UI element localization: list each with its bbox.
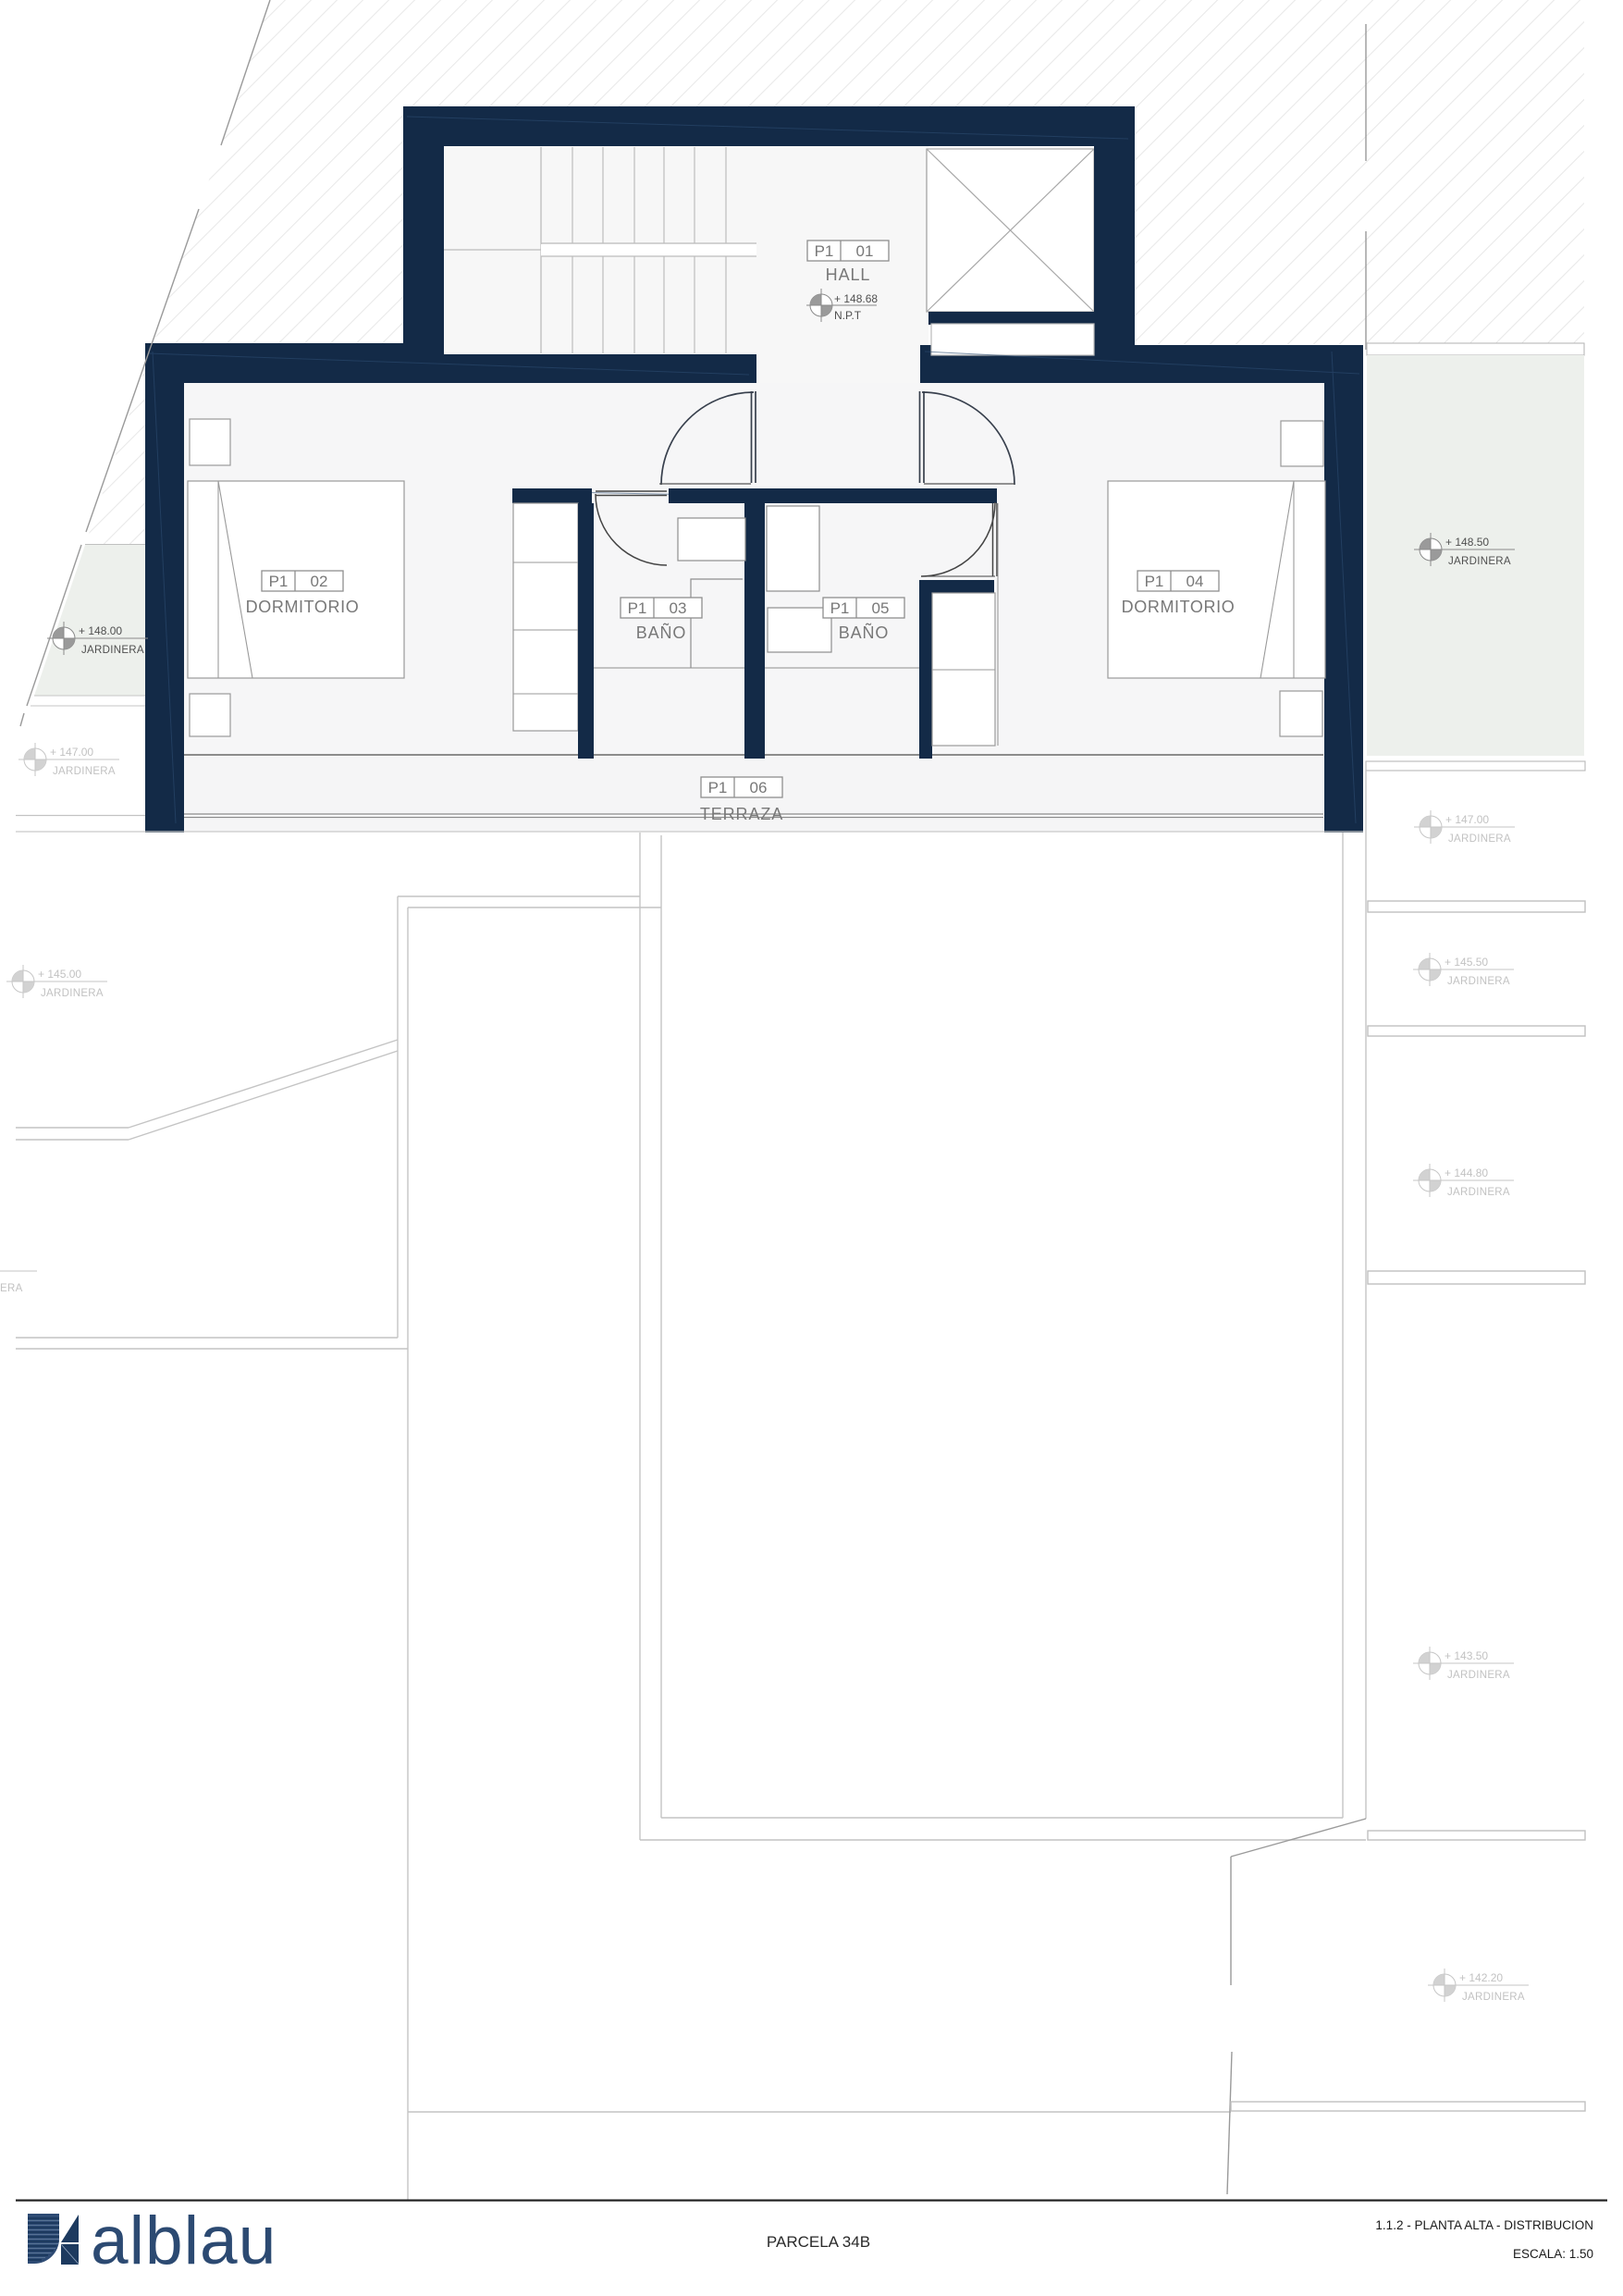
svg-text:BAÑO: BAÑO bbox=[839, 623, 890, 642]
svg-text:JARDINERA: JARDINERA bbox=[1447, 1187, 1510, 1198]
svg-text:+ 148.00: + 148.00 bbox=[79, 624, 122, 637]
svg-text:P1: P1 bbox=[628, 599, 647, 617]
svg-text:HALL: HALL bbox=[826, 265, 871, 284]
svg-text:P1: P1 bbox=[269, 573, 289, 590]
svg-text:alblau: alblau bbox=[91, 2203, 277, 2278]
svg-text:JARDINERA: JARDINERA bbox=[81, 645, 144, 656]
svg-text:01: 01 bbox=[856, 242, 874, 260]
svg-text:+ 147.00: + 147.00 bbox=[50, 746, 93, 759]
svg-text:JARDINERA: JARDINERA bbox=[1462, 1992, 1525, 2003]
svg-text:ERA: ERA bbox=[0, 1283, 23, 1294]
svg-text:+ 145.50: + 145.50 bbox=[1445, 956, 1488, 969]
svg-text:02: 02 bbox=[311, 573, 328, 590]
svg-text:JARDINERA: JARDINERA bbox=[41, 988, 104, 999]
svg-text:+ 148.68: + 148.68 bbox=[834, 292, 878, 305]
svg-text:05: 05 bbox=[872, 599, 890, 617]
svg-text:+ 142.20: + 142.20 bbox=[1459, 1971, 1503, 1984]
svg-text:ESCALA: 1.50: ESCALA: 1.50 bbox=[1513, 2247, 1593, 2261]
svg-text:BAÑO: BAÑO bbox=[636, 623, 687, 642]
svg-text:PARCELA 34B: PARCELA 34B bbox=[767, 2233, 870, 2251]
svg-text:P1: P1 bbox=[830, 599, 850, 617]
svg-text:P1: P1 bbox=[1145, 573, 1164, 590]
svg-text:TERRAZA: TERRAZA bbox=[700, 805, 783, 823]
svg-text:JARDINERA: JARDINERA bbox=[1447, 1670, 1510, 1681]
svg-text:+ 145.00: + 145.00 bbox=[38, 968, 81, 981]
svg-text:DORMITORIO: DORMITORIO bbox=[1122, 598, 1236, 616]
svg-text:03: 03 bbox=[670, 599, 687, 617]
svg-text:1.1.2 - PLANTA ALTA - DISTRIB: 1.1.2 - PLANTA ALTA - DISTRIBUCION bbox=[1375, 2218, 1593, 2232]
svg-text:JARDINERA: JARDINERA bbox=[53, 766, 116, 777]
svg-text:JARDINERA: JARDINERA bbox=[1448, 556, 1511, 567]
svg-text:DORMITORIO: DORMITORIO bbox=[246, 598, 360, 616]
svg-text:+ 148.50: + 148.50 bbox=[1445, 536, 1489, 549]
svg-text:06: 06 bbox=[750, 779, 768, 796]
svg-text:+ 147.00: + 147.00 bbox=[1445, 813, 1489, 826]
svg-text:P1: P1 bbox=[815, 242, 834, 260]
svg-text:+ 144.80: + 144.80 bbox=[1445, 1167, 1488, 1179]
svg-text:JARDINERA: JARDINERA bbox=[1448, 833, 1511, 845]
svg-text:JARDINERA: JARDINERA bbox=[1447, 976, 1510, 987]
svg-text:04: 04 bbox=[1187, 573, 1204, 590]
svg-text:N.P.T: N.P.T bbox=[834, 309, 862, 322]
svg-text:P1: P1 bbox=[708, 779, 728, 796]
svg-text:+ 143.50: + 143.50 bbox=[1445, 1649, 1488, 1662]
